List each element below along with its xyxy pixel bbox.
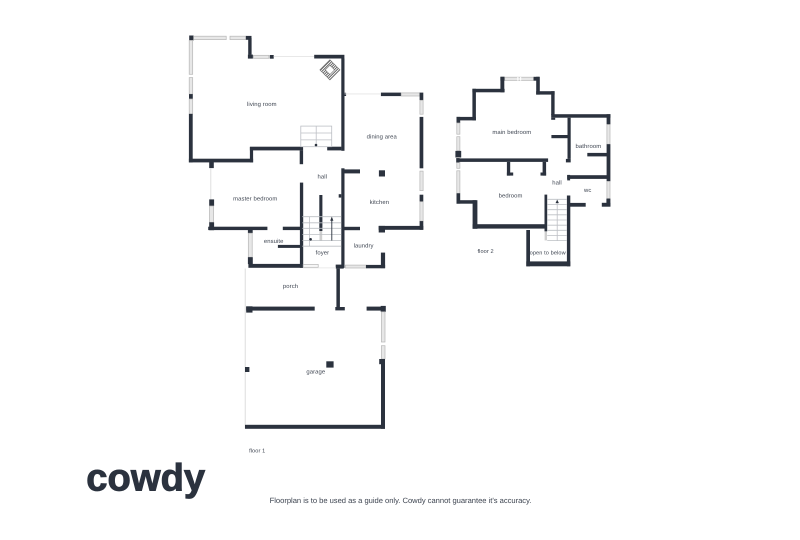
svg-text:master bedroom: master bedroom <box>233 196 277 203</box>
svg-text:floor 1: floor 1 <box>249 448 265 455</box>
svg-text:cowdy: cowdy <box>86 457 206 500</box>
svg-text:laundry: laundry <box>354 242 374 249</box>
svg-text:Floorplan is to be used as a g: Floorplan is to be used as a guide only.… <box>270 496 532 505</box>
svg-text:bedroom: bedroom <box>499 193 523 200</box>
svg-text:foyer: foyer <box>316 249 330 256</box>
svg-text:hall: hall <box>552 179 562 186</box>
svg-text:garage: garage <box>306 370 326 376</box>
svg-text:main bedroom: main bedroom <box>492 129 531 136</box>
svg-text:kitchen: kitchen <box>370 199 389 206</box>
svg-text:wc: wc <box>583 188 591 194</box>
svg-text:floor 2: floor 2 <box>477 248 493 255</box>
svg-text:dining area: dining area <box>367 133 398 140</box>
svg-text:bathroom: bathroom <box>576 143 602 150</box>
svg-text:ensuite: ensuite <box>264 238 284 245</box>
svg-text:hall: hall <box>318 174 328 181</box>
svg-text:open to below: open to below <box>530 249 567 256</box>
svg-text:living room: living room <box>247 101 277 108</box>
svg-text:porch: porch <box>283 283 298 290</box>
